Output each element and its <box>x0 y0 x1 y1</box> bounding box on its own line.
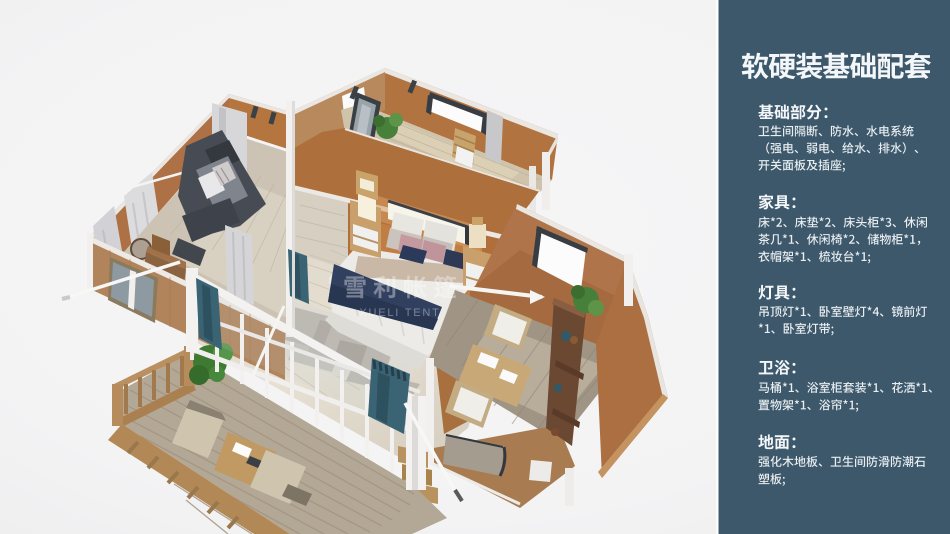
svg-text:XUELI TENT: XUELI TENT <box>359 307 440 319</box>
